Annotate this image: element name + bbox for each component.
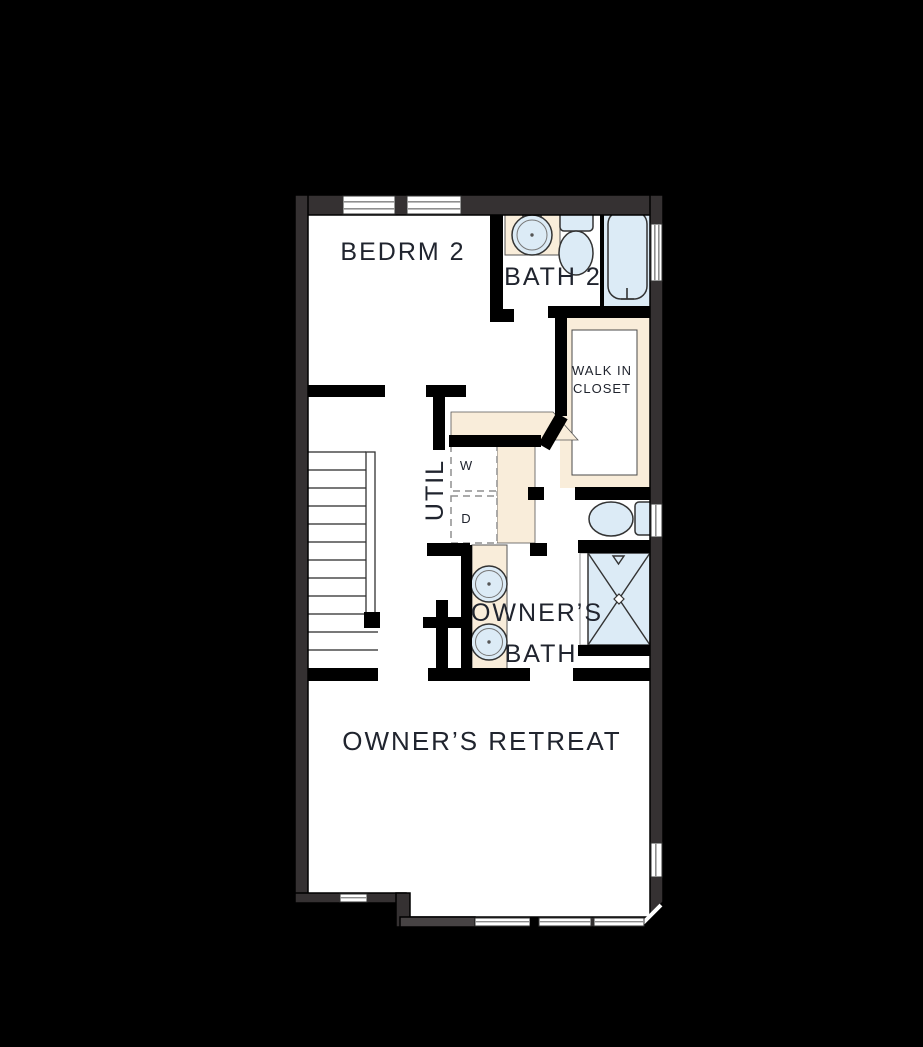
walk-in-closet-label-line1: WALK IN xyxy=(572,363,632,378)
owners-sink1-drain xyxy=(487,582,490,585)
west-wall xyxy=(295,195,308,903)
bath2-sink-drain xyxy=(530,233,533,236)
window-east-toilet xyxy=(651,504,662,537)
closet-south-wall xyxy=(575,487,655,500)
retreat-north-wall-b xyxy=(428,668,530,681)
media-wall-segment xyxy=(400,917,475,927)
retreat-north-wall-a xyxy=(308,668,378,681)
owners-sink2-drain xyxy=(487,640,490,643)
stair-railing xyxy=(366,452,375,614)
window-south-1 xyxy=(475,918,530,926)
hall-lower-stub xyxy=(423,617,465,628)
washer-box xyxy=(451,442,497,491)
walk-in-closet-label-line2: CLOSET xyxy=(573,381,631,396)
south-window-mullion xyxy=(530,917,539,927)
floor-plan-canvas: BEDRM 2 BATH 2 WALK IN CLOSET UTIL W D O… xyxy=(0,0,923,1047)
window-south-3 xyxy=(594,918,644,926)
closet-floor xyxy=(572,330,637,475)
closet-south-stub xyxy=(528,487,544,500)
owners-retreat-label: OWNER’S RETREAT xyxy=(342,726,621,756)
window-jog xyxy=(340,894,367,902)
dryer-label: D xyxy=(461,511,470,526)
closet-west-wall xyxy=(555,306,567,416)
util-label: UTIL xyxy=(421,459,449,521)
bedrm2-south-wall xyxy=(308,385,385,397)
owners-toilet-icon xyxy=(589,502,656,536)
stair-head-wall xyxy=(449,435,541,447)
bath2-wall-cap xyxy=(490,309,514,322)
window-east-retreat xyxy=(651,843,662,877)
dryer-box xyxy=(451,496,497,543)
east-wall xyxy=(650,195,663,927)
stair-newel-wall xyxy=(364,612,380,628)
hall-lower-wall xyxy=(436,600,448,668)
tub-basin xyxy=(608,211,647,299)
bath2-label: BATH 2 xyxy=(504,263,602,291)
bedrm2-label: BEDRM 2 xyxy=(340,238,465,266)
washer-label: W xyxy=(460,458,473,473)
util-south-wall-b xyxy=(530,543,547,556)
owners-toilet-bowl xyxy=(589,502,633,536)
window-north-1 xyxy=(343,196,395,214)
hall-wall-stub xyxy=(426,385,466,397)
owners-bath-label-line1: OWNER’S xyxy=(471,599,603,627)
hall-wall xyxy=(433,385,445,450)
window-north-2 xyxy=(407,196,461,214)
floor-plan-drawing: BEDRM 2 BATH 2 WALK IN CLOSET UTIL W D O… xyxy=(0,0,923,1047)
window-south-2 xyxy=(539,918,591,926)
owners-bath-label-line2: BATH xyxy=(505,640,578,668)
window-east-tub xyxy=(651,224,662,281)
